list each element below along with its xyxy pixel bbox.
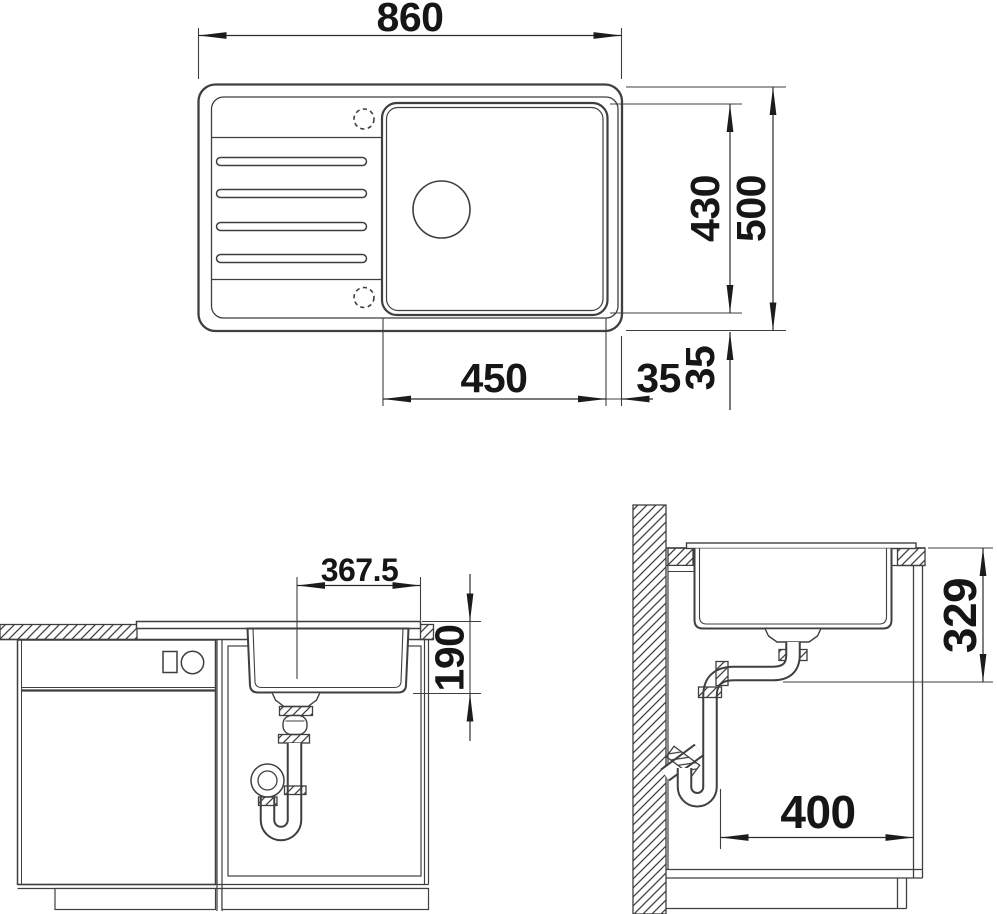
side-section-view: 329 400 [633, 505, 993, 914]
trap-outlet-end [251, 764, 284, 797]
pipe-nut-side [699, 687, 722, 698]
drainboard-rib [217, 223, 367, 231]
dim-label-overall-width: 860 [377, 0, 444, 40]
dim-base-clearance: 400 [721, 786, 914, 849]
dim-label-mount-depth: 329 [934, 578, 986, 653]
dim-label-drain-to-edge: 367.5 [321, 552, 399, 588]
bowl-section-side [695, 549, 892, 629]
dim-label-base-clearance: 400 [780, 786, 855, 838]
appliance-knob-icon [181, 651, 203, 673]
sink-dimension-drawing: 860 500 430 35 450 35 [0, 0, 997, 914]
front-section-view: 367.5 190 [0, 552, 481, 911]
wall-section [633, 505, 666, 914]
plinth-side [666, 878, 907, 909]
dim-offset-bottom: 35 [677, 332, 730, 410]
dim-bowl-inner-depth: 190 [413, 574, 481, 741]
countertop-section-back [668, 548, 693, 566]
dim-label-offset-bottom: 35 [677, 346, 723, 391]
drainboard-rib [217, 158, 367, 166]
countertop-section-front [898, 548, 926, 566]
cabinet-front-side [914, 566, 923, 879]
dim-offset-right: 35 [606, 355, 681, 401]
appliance-display-icon [163, 652, 177, 673]
dim-label-bowl-inner-depth: 190 [427, 625, 473, 692]
dim-label-bowl-depth: 430 [682, 175, 728, 242]
drain-flange-side [765, 629, 821, 643]
counter-edge-step [668, 566, 694, 572]
left-plinth [55, 889, 216, 910]
dim-label-offset-right: 35 [636, 355, 681, 401]
sink-rim-side [687, 543, 917, 549]
drain-elbow [283, 716, 307, 735]
drainboard-rib [217, 255, 367, 263]
pipe-nut [285, 786, 307, 795]
pipe-nut [259, 797, 278, 806]
dim-label-overall-depth: 500 [728, 175, 774, 242]
right-plinth [222, 889, 429, 910]
cabinet-divider [217, 640, 222, 911]
trap-pipe-side [685, 642, 794, 800]
dim-overall-width: 860 [199, 0, 622, 79]
drain-hole [413, 181, 470, 238]
bowl-section-front [248, 629, 409, 693]
dim-bowl-depth: 430 [610, 104, 742, 313]
dim-label-bowl-width: 450 [461, 355, 528, 401]
top-view: 860 500 430 35 450 35 [199, 0, 787, 410]
drainboard-rib [217, 190, 367, 198]
drain-nut [280, 707, 313, 716]
pipe-nut-side [716, 662, 728, 686]
cabinet-bottom-side [666, 870, 923, 879]
drain-flange-front [272, 693, 320, 707]
sink-rim-front [137, 622, 421, 629]
left-cabinet [18, 640, 216, 885]
countertop-section-left [0, 625, 137, 640]
technical-drawing-page: 860 500 430 35 450 35 [0, 0, 997, 914]
pipe-nut [279, 735, 310, 744]
